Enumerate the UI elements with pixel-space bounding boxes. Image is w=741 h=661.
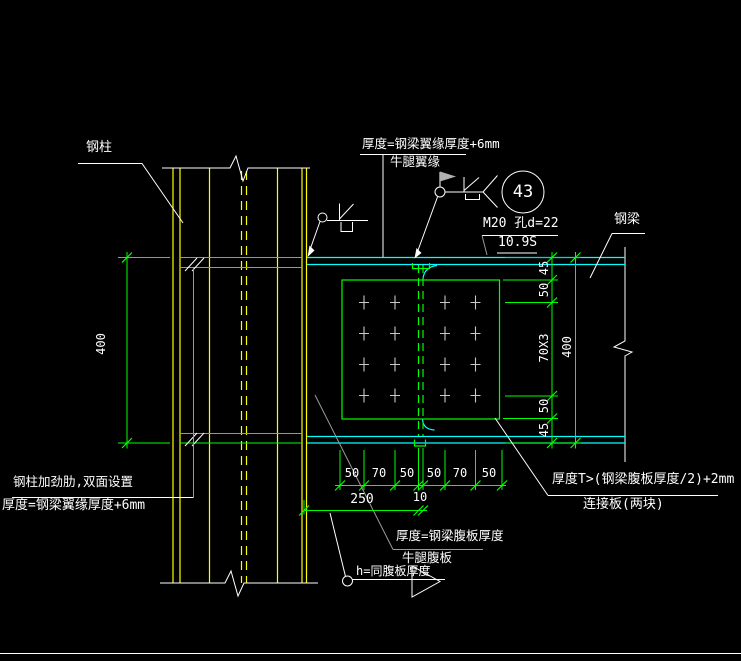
steel-column-leader — [78, 164, 183, 224]
column-top-break — [162, 156, 310, 181]
weld-access-hole-bottom — [423, 419, 435, 430]
dim-right-3: 70X3 — [537, 328, 551, 368]
dim-splice-gap: 10 — [407, 491, 433, 504]
splice-notch-top — [413, 263, 430, 269]
splice-gap-hidden-lines — [419, 265, 424, 436]
break-lines — [0, 156, 741, 654]
dim-bottom-3: 50 — [394, 467, 420, 480]
dim-bottom-2: 70 — [366, 467, 392, 480]
weld-size-note: h=同腹板厚度 — [356, 565, 430, 578]
annotation-lines — [12, 155, 718, 580]
bolt-spec-label: M20 孔d=22 — [483, 217, 559, 231]
bolt-spec-leader — [482, 236, 487, 256]
beam-end-break — [614, 247, 632, 462]
corbel-web-note-line1: 厚度=钢梁腹板厚度 — [396, 529, 504, 543]
dim-bottom-1: 50 — [339, 467, 365, 480]
bolt-grade-label: 10.9S — [498, 236, 537, 250]
weld-all-around-circle — [435, 187, 445, 197]
splice-plate-note-line1: 厚度T>(钢梁腹板厚度/2)+2mm — [552, 473, 734, 487]
dim-bottom-5: 70 — [447, 467, 473, 480]
splice-plate — [342, 263, 500, 446]
dim-bottom-6: 50 — [476, 467, 502, 480]
column-bottom-break — [160, 571, 318, 596]
column-stiffener-note-line1: 钢柱加劲肋,双面设置 — [13, 475, 133, 489]
weld-symbol-left — [308, 204, 369, 258]
leader-arrowhead — [308, 246, 315, 258]
field-weld-flag — [440, 172, 456, 182]
dim-beam-depth-right: 400 — [560, 327, 574, 367]
detail-number: 43 — [509, 183, 537, 202]
bottom-dims — [304, 448, 506, 515]
steel-column-label: 钢柱 — [86, 141, 112, 155]
bolt-group — [359, 296, 481, 403]
weld-all-around-circle — [318, 213, 327, 222]
beam-flange-lines — [307, 258, 625, 444]
dim-corbel-length: 250 — [342, 493, 382, 507]
dim-right-2: 50 — [537, 270, 551, 310]
gray-leader-lines — [194, 236, 488, 550]
dim-beam-depth-left: 400 — [94, 324, 108, 364]
column-center-lines — [242, 171, 247, 583]
dim-bottom-4: 50 — [421, 467, 447, 480]
weld-size-note-circle — [343, 576, 353, 586]
left-dim — [118, 252, 170, 449]
column-stiffener-note-line2: 厚度=钢梁翼缘厚度+6mm — [2, 499, 145, 513]
steel-beam-leader — [590, 234, 645, 279]
stiffener-weld-ticks — [185, 258, 204, 446]
steel-beam-label: 钢梁 — [614, 213, 640, 227]
corbel-web-note-line2: 牛腿腹板 — [402, 551, 452, 565]
corbel-flange-note-line1: 厚度=钢梁翼缘厚度+6mm — [362, 137, 500, 151]
dim-right-5: 45 — [537, 410, 551, 450]
cad-drawing-beam-column-connection: 钢柱 钢梁 厚度=钢梁翼缘厚度+6mm 牛腿翼缘 M20 孔d=22 10.9S… — [0, 0, 741, 661]
drawing-linework — [0, 0, 741, 661]
splice-plate-note-line2: 连接板(两块) — [583, 498, 664, 512]
corbel-flange-note-line2: 牛腿翼缘 — [390, 155, 440, 169]
corbel-flange-note-leader — [360, 155, 466, 258]
